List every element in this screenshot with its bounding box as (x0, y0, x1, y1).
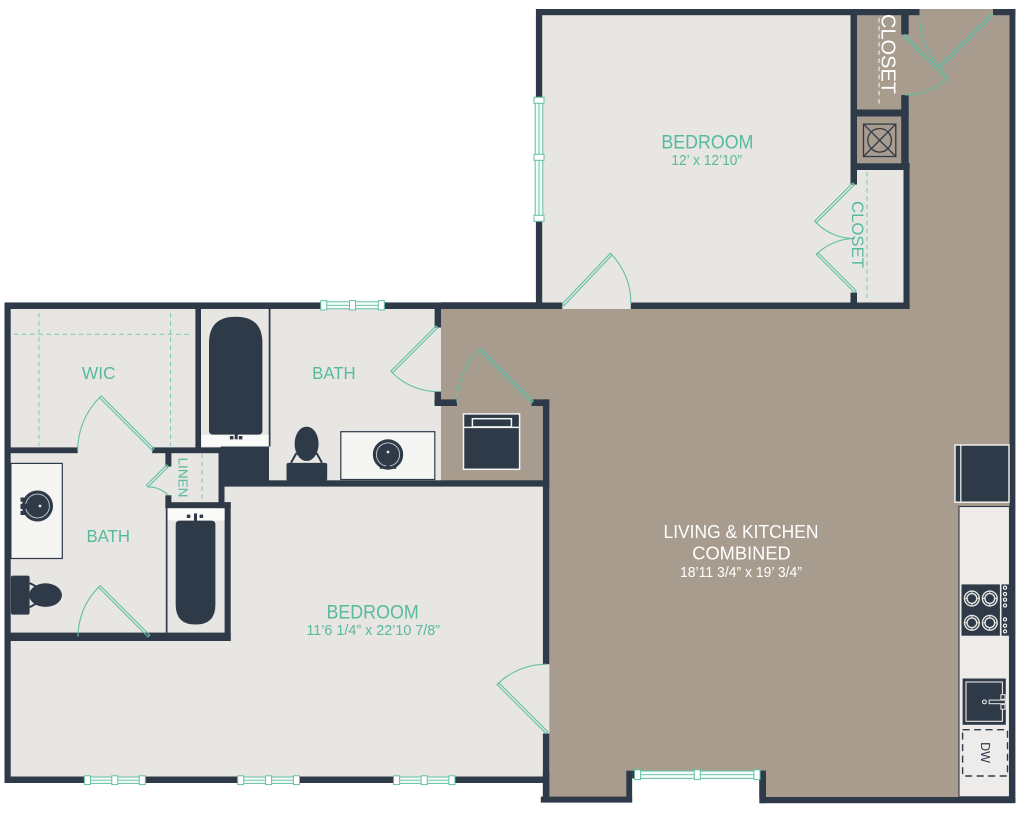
svg-text:BEDROOM: BEDROOM (327, 601, 419, 623)
svg-text:CLOSET: CLOSET (877, 14, 899, 94)
svg-text:WIC: WIC (82, 363, 116, 383)
svg-text:LINEN: LINEN (176, 458, 190, 498)
svg-text:12’ x 12’10”: 12’ x 12’10” (671, 153, 742, 169)
svg-text:18’11 3/4” x 19’ 3/4”: 18’11 3/4” x 19’ 3/4” (680, 565, 802, 581)
svg-text:BATH: BATH (312, 363, 356, 383)
svg-text:BEDROOM: BEDROOM (661, 132, 753, 154)
svg-text:11’6 1/4” x 22’10 7/8”: 11’6 1/4” x 22’10 7/8” (306, 623, 440, 639)
svg-text:LIVING & KITCHEN: LIVING & KITCHEN (664, 521, 819, 542)
svg-text:COMBINED: COMBINED (692, 542, 790, 563)
svg-text:BATH: BATH (86, 526, 130, 546)
svg-text:DW: DW (978, 742, 992, 763)
svg-text:CLOSET: CLOSET (848, 201, 867, 268)
